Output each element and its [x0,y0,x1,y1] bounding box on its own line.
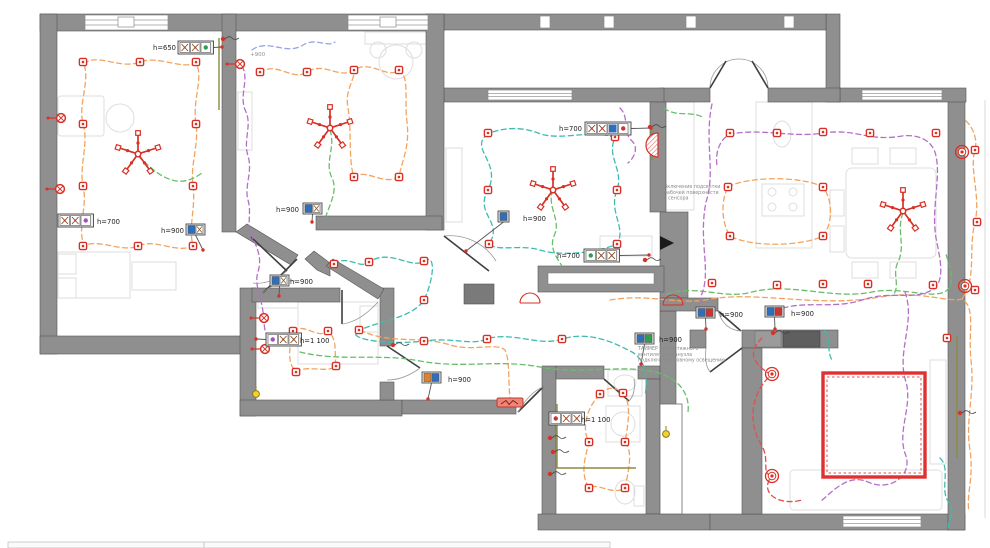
window [784,16,794,28]
door [444,236,489,271]
socket-group-symbol [549,412,585,425]
socket-symbol [324,327,331,334]
socket-symbol [136,58,143,65]
cable-routes [82,38,977,528]
floor-plan: h=650+900h=700h=900h=900h=900h=700h=900h… [0,0,990,548]
spotlight-symbol [766,368,779,381]
height-label: h=650 [153,44,176,52]
annotation-note: Включение подсветкирабочей поверхностис … [664,184,720,202]
socket-symbol [971,146,978,153]
cable-route-circuit_purple [620,108,635,163]
furniture-item [789,188,797,196]
connection-point [643,258,661,262]
wall-segment [380,288,394,346]
socket-symbol [819,232,826,239]
socket-symbol [395,66,402,73]
window [843,516,921,527]
socket-group-symbol [585,122,653,135]
chandelier-symbol [307,105,353,149]
height-label: h=900 [791,310,814,318]
height-label: h=900 [659,336,682,344]
socket-symbol [420,257,427,264]
wall-segment [742,348,762,514]
socket-symbol [819,183,826,190]
socket-symbol [79,182,86,189]
door [710,61,726,88]
window [604,16,614,28]
furniture-item [890,262,916,278]
socket-symbol [134,242,141,249]
socket-symbol [79,242,86,249]
electrical-symbols [46,37,981,492]
height-label: h=700 [559,125,582,133]
switch-symbol [422,372,441,401]
door [387,346,420,368]
led-strip-zone [823,373,925,477]
socket-symbol [708,279,715,286]
socket-symbol [943,334,950,341]
height-label: +900 [250,52,266,58]
window [118,17,134,27]
wall-segment [538,514,710,530]
furniture-item [930,360,946,464]
wall-segment [464,284,494,304]
electrical-plan-page: h=650+900h=700h=900h=900h=900h=700h=900h… [0,0,990,548]
socket-symbol [256,68,263,75]
height-label: h=1 100 [581,416,610,424]
socket-symbol [819,280,826,287]
wall-segment [768,88,840,102]
socket-symbol [292,368,299,375]
wall-segment [222,14,236,232]
socket-symbol [79,58,86,65]
furniture-item [611,412,635,436]
furniture-item [852,262,878,278]
socket-group-symbol [584,249,651,262]
socket-group-symbol [178,41,224,54]
switch-symbol [765,306,784,331]
furniture-item [614,375,636,391]
cable-route-socket_circuit [260,67,408,180]
title-block-cell [8,542,204,548]
socket-symbol [613,240,620,247]
height-label: h=900 [290,278,313,286]
cable-route-light_circuit_2 [667,254,951,294]
socket-symbol [773,129,780,136]
heater-symbol [646,133,658,157]
socket-symbol [973,218,980,225]
height-label: h=900 [523,215,546,223]
cable-route-light_circuit_2 [326,130,334,216]
cable-route-light_circuit_2 [664,108,704,118]
cable-route-light_circuit_2 [894,213,903,294]
furniture-item [132,262,176,290]
window [686,16,696,28]
socket-symbol [619,389,626,396]
window [488,90,572,100]
socket-symbol [485,240,492,247]
socket-symbol [483,335,490,342]
connection-point [551,450,569,454]
wall-segment [40,14,57,354]
furniture-item [238,92,252,150]
wall-segment [548,273,654,284]
connection-point [391,343,409,347]
furniture-item [890,148,916,164]
furniture-item [106,104,134,132]
cable-route-socket_circuit [723,179,831,245]
cable-route-circuit_blue [252,42,335,50]
height-label: h=900 [276,206,299,214]
socket-symbol [866,129,873,136]
furniture-item [58,278,76,298]
furniture-item [852,148,878,164]
annotation-note: ТАЙМЕР для вытяжноговентилятора санузлап… [637,345,725,364]
chandelier-symbol [115,131,161,175]
wall-segment [556,366,604,379]
socket-symbol [971,286,978,293]
socket-symbol [585,438,592,445]
socket-symbol [420,296,427,303]
wall-segment [690,330,706,348]
wall-segment [660,88,710,102]
socket-symbol [192,58,199,65]
socket-symbol [350,173,357,180]
furniture-item [846,168,936,258]
socket-symbol [330,260,337,267]
socket-symbol [864,280,871,287]
socket-symbol [932,129,939,136]
furniture-item [768,188,776,196]
height-label: h=900 [720,311,743,319]
socket-symbol [365,258,372,265]
socket-symbol [355,326,362,333]
socket-symbol [420,337,427,344]
socket-symbol [395,173,402,180]
socket-symbol [929,281,936,288]
wall-segment [646,379,660,514]
socket-symbol [484,186,491,193]
chandelier-symbol [530,167,576,211]
wall-segment [380,382,394,400]
wall-segment [542,366,556,518]
furniture-item [446,148,462,222]
switch-symbol [696,307,715,331]
window [540,16,550,28]
socket-symbol [350,66,357,73]
height-label: h=700 [97,218,120,226]
wall-segment [316,216,442,230]
furniture-item [58,252,130,298]
socket-symbol [726,232,733,239]
title-block-cell [204,542,610,548]
height-label: h=700 [557,252,580,260]
socket-symbol [585,484,592,491]
height-label: h=900 [448,376,471,384]
wall-segment [40,336,252,354]
socket-symbol [484,129,491,136]
wall-segment [305,251,330,276]
window [380,17,396,27]
socket-symbol [79,120,86,127]
chandelier-symbol [880,188,926,232]
exhaust-fan-symbol [497,398,523,407]
socket-symbol [621,484,628,491]
wall-segment [710,514,965,530]
door [752,61,768,88]
socket-group-symbol [254,333,301,346]
window [862,90,942,100]
wall-segment [240,400,402,416]
wall-segment [755,331,781,347]
furniture [58,32,946,510]
wall-segment [660,404,682,514]
wall-segment [236,224,298,265]
furniture-item [762,184,804,216]
furniture-item [634,486,644,506]
wall-segment [426,14,444,230]
socket-symbol [189,182,196,189]
height-label: h=900 [161,227,184,235]
socket-symbol [192,120,199,127]
furniture-item [768,203,776,211]
height-label: h=1 100 [300,337,329,345]
title-block [8,542,610,548]
socket-symbol [726,129,733,136]
wall-segment [783,331,820,347]
connection-point [958,411,976,415]
socket-symbol [773,281,780,288]
door [387,368,420,380]
spotlight-symbol [766,470,779,483]
furniture-item [830,190,844,216]
socket-symbol [613,186,620,193]
socket-group-symbol [58,214,94,227]
socket-symbol [558,335,565,342]
furniture-item [789,203,797,211]
fan-arc-symbol [520,293,540,303]
socket-symbol [332,362,339,369]
socket-symbol [189,242,196,249]
socket-symbol [621,438,628,445]
furniture-item [58,254,76,274]
socket-symbol [596,390,603,397]
furniture-item [830,226,844,252]
socket-symbol [819,128,826,135]
connection-point [548,472,566,476]
wall-segment [444,14,826,30]
socket-symbol [303,68,310,75]
socket-symbol [724,183,731,190]
wall-segment [948,100,965,530]
furniture-item [756,102,812,248]
